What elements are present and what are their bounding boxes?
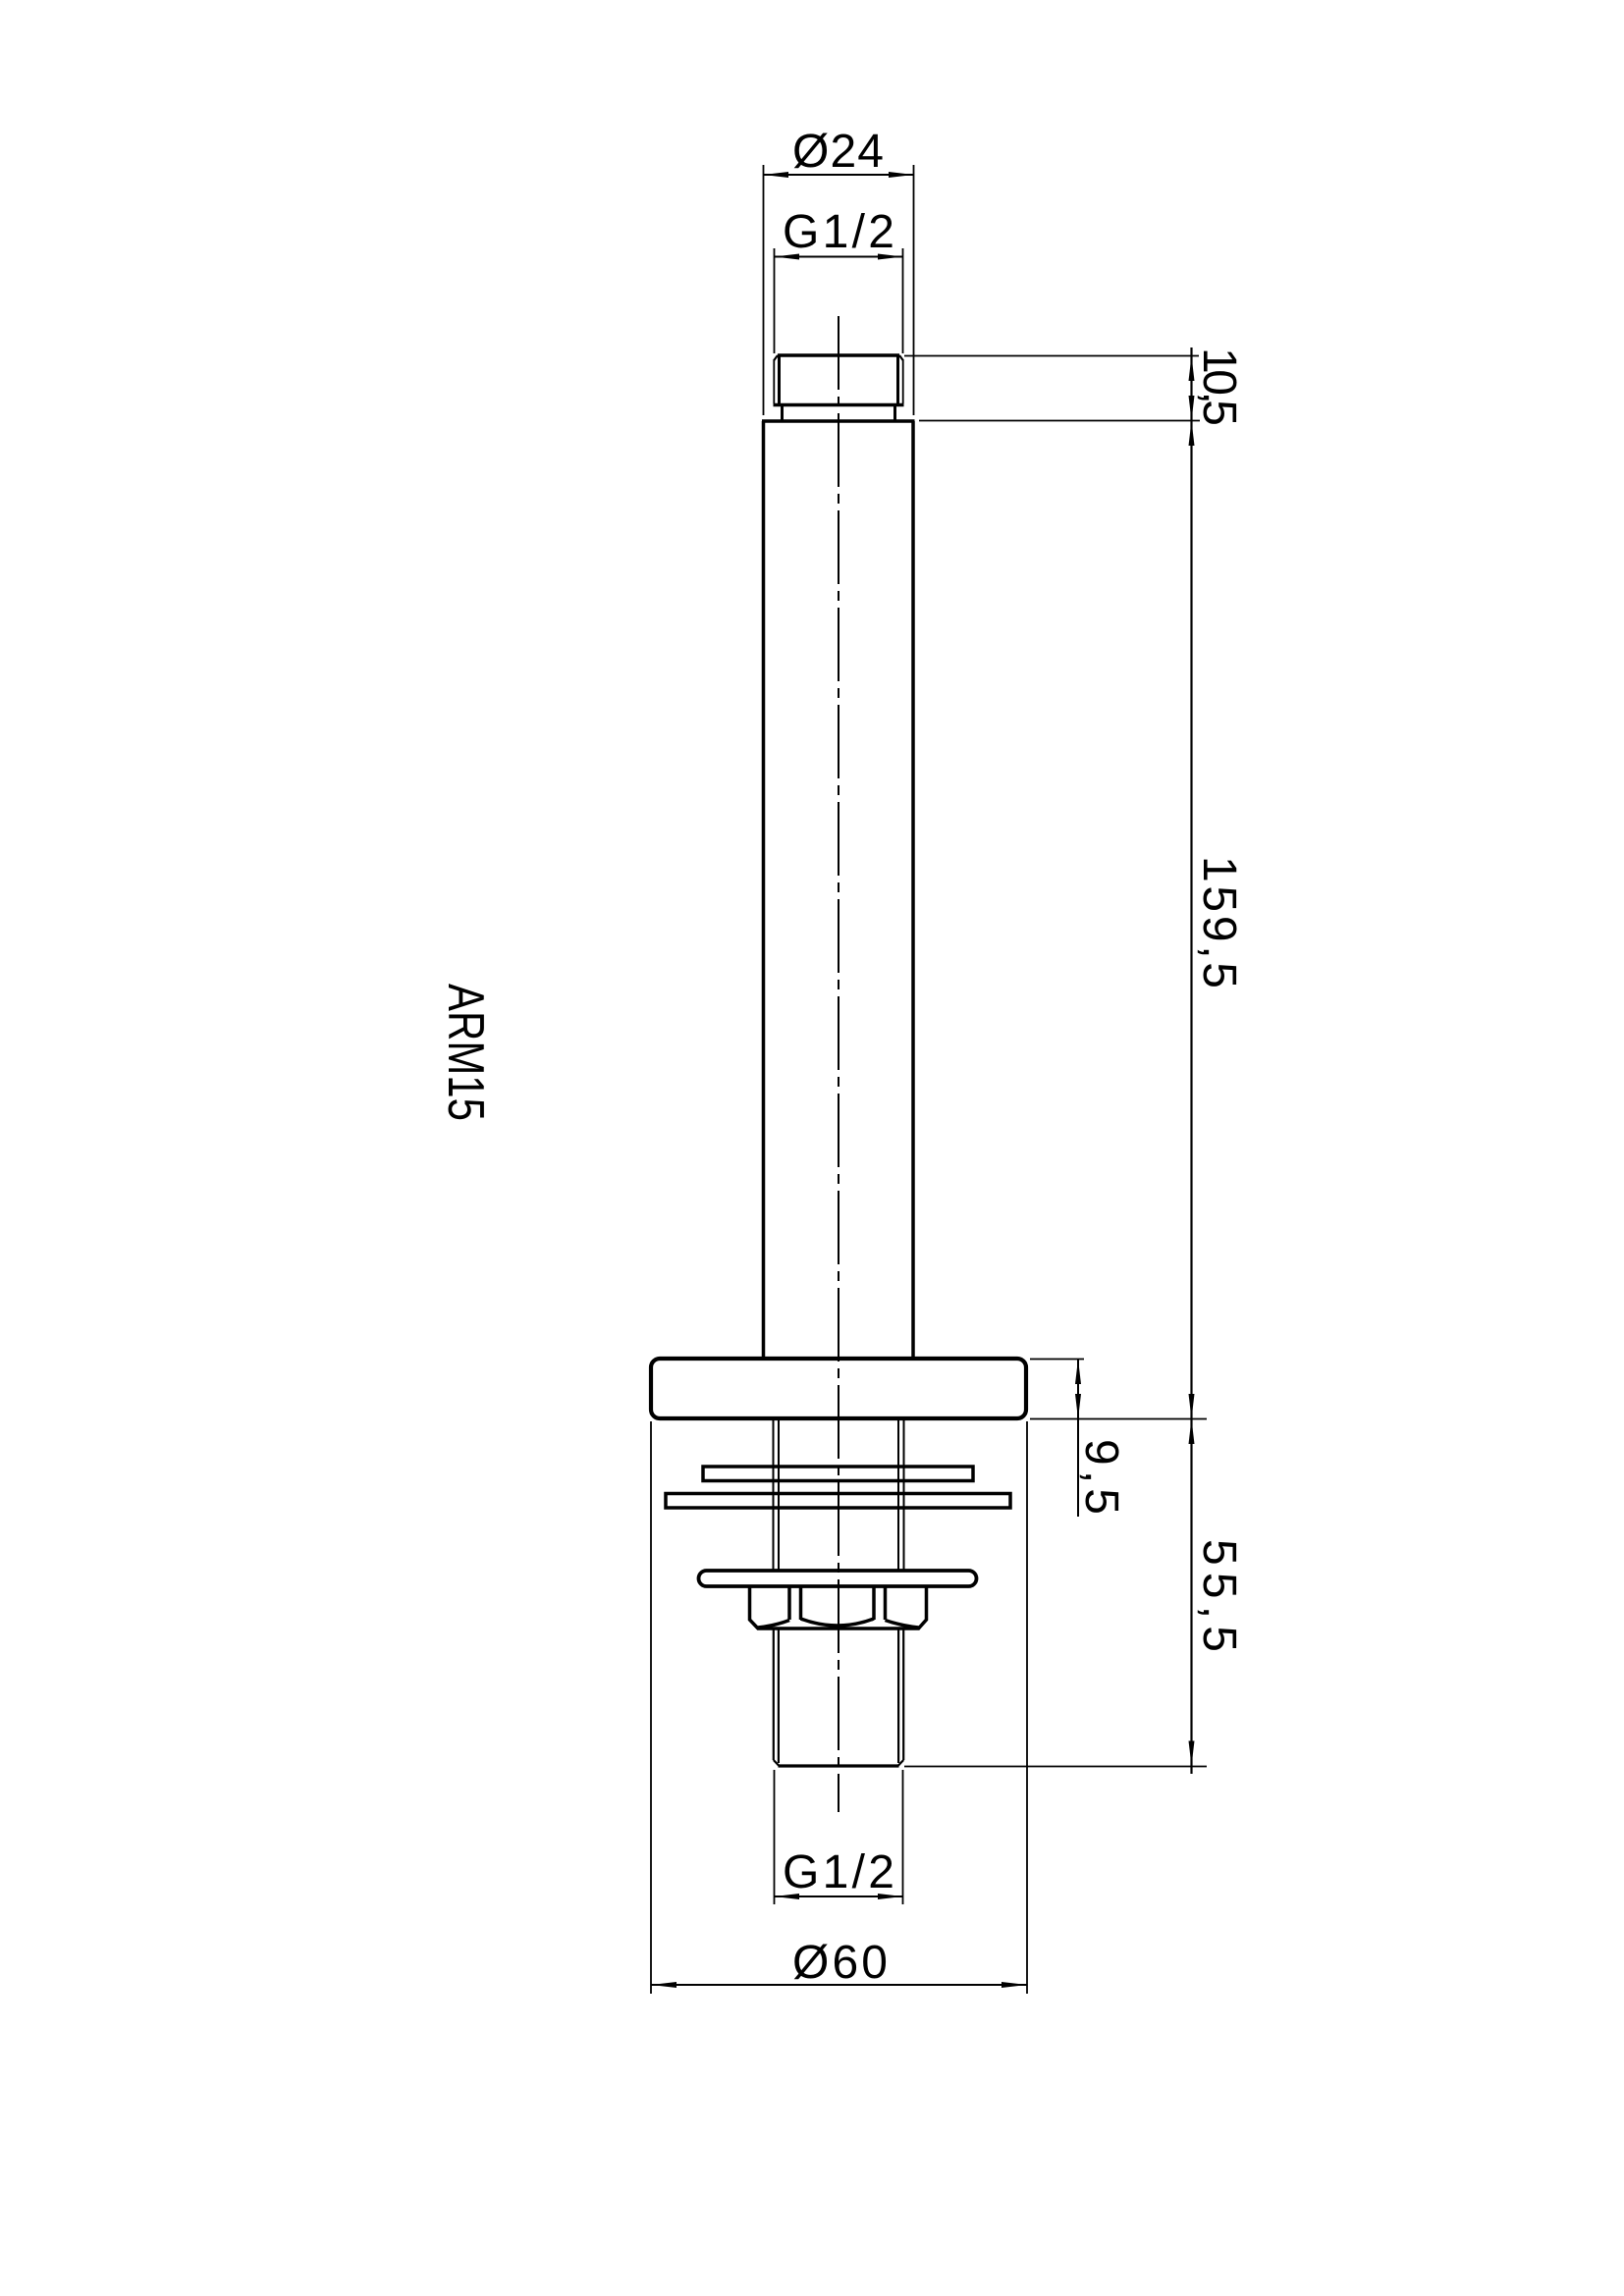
- svg-text:55,5: 55,5: [1193, 1539, 1245, 1650]
- svg-text:10,5: 10,5: [1193, 347, 1245, 424]
- svg-text:9,5: 9,5: [1075, 1439, 1127, 1513]
- svg-text:G1/2: G1/2: [783, 1846, 893, 1898]
- svg-text:ARM15: ARM15: [437, 984, 494, 1121]
- svg-text:Ø60: Ø60: [792, 1937, 886, 1989]
- svg-text:159,5: 159,5: [1193, 856, 1245, 987]
- svg-text:G1/2: G1/2: [783, 206, 893, 258]
- svg-text:Ø24: Ø24: [792, 126, 883, 178]
